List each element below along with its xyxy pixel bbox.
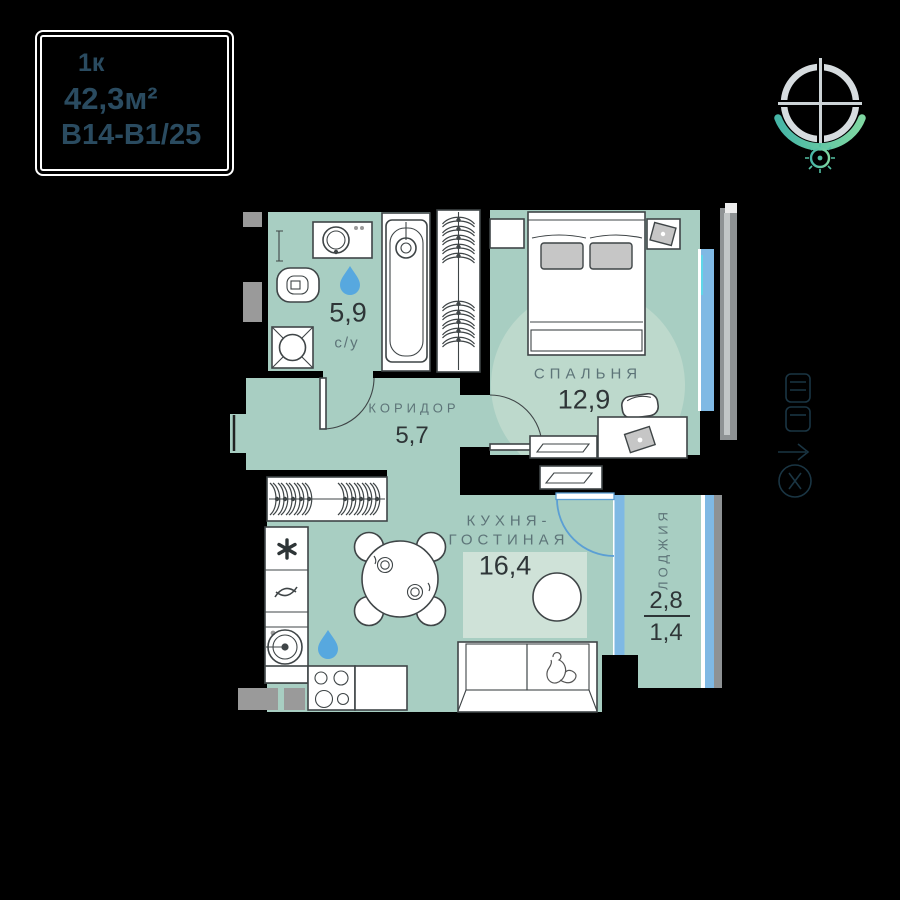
coffee-table-icon xyxy=(533,573,581,621)
vent-shaft-icon xyxy=(243,212,262,227)
corridor-area-label: 5,7 xyxy=(395,422,428,450)
wardrobe-horizontal xyxy=(267,477,387,521)
floorplan-page: 1к 42,3м² В14-В1/25 5,9 с/у КОРИДОР 5,7 … xyxy=(0,0,900,900)
bedroom-doorway xyxy=(460,395,492,447)
unit-code-label: В14-В1/25 xyxy=(61,119,201,152)
bedroom-area-label: 12,9 xyxy=(558,385,611,416)
direction-arrow-icon xyxy=(778,444,808,460)
window-highlight xyxy=(701,255,703,295)
vent-shaft-icon xyxy=(243,282,262,322)
balcony-door-leaf xyxy=(556,493,614,500)
vent-shaft-icon xyxy=(284,688,305,710)
bedroom-name-label: СПАЛЬНЯ xyxy=(534,366,642,383)
kitchen-drain xyxy=(281,643,288,650)
kitchen-area-label: 16,4 xyxy=(479,551,532,582)
loggia-area-full-label: 2,8 xyxy=(649,587,682,615)
sink-tap-dot xyxy=(354,226,358,230)
loggia-fraction-line xyxy=(644,615,690,617)
nightstand-icon xyxy=(490,219,524,248)
bathroom-door-leaf xyxy=(320,378,326,429)
closet-vertical xyxy=(437,210,480,372)
total-area-label: 42,3м² xyxy=(64,81,158,117)
picture-dot xyxy=(661,232,665,236)
info-card: 1к 42,3м² В14-В1/25 xyxy=(35,30,234,176)
kitchen-counter xyxy=(355,666,407,710)
tv-stand-icon xyxy=(540,466,602,489)
loggia-name-label: ЛОДЖИЯ xyxy=(656,508,671,590)
bed-icon xyxy=(528,212,645,355)
facade-bar-inner xyxy=(724,213,730,435)
rooms-count-label: 1к xyxy=(78,49,104,78)
vent-shaft-icon xyxy=(238,688,278,710)
compass-sun-marker xyxy=(778,374,811,497)
kitchen-name-label-1: КУХНЯ- xyxy=(466,513,551,530)
loggia-glazing-outer xyxy=(714,495,722,688)
pillow-icon xyxy=(590,243,632,269)
dining-set xyxy=(355,533,446,626)
sink-tap-dot xyxy=(360,226,364,230)
entry-door-gap xyxy=(230,414,248,453)
laptop-dot xyxy=(638,438,643,443)
kitchen-loggia-partition xyxy=(615,495,625,655)
loggia-area-reduced-label: 1,4 xyxy=(649,619,682,647)
toilet-icon xyxy=(277,268,319,302)
loggia-wall-notch xyxy=(621,655,638,688)
loggia-glazing xyxy=(705,495,714,688)
kitchen-name-label-2: ГОСТИНАЯ xyxy=(449,532,570,549)
pillow-icon xyxy=(541,243,583,269)
dining-table-icon xyxy=(362,541,438,617)
loggia-glazing-frame xyxy=(701,495,705,688)
tv-stand xyxy=(540,466,602,489)
washing-machine-drum xyxy=(280,335,306,361)
corridor-name-label: КОРИДОР xyxy=(368,401,459,416)
compass-logo xyxy=(778,58,862,173)
facade-bar-cap xyxy=(725,203,737,213)
bathroom-name-label: с/у xyxy=(334,335,359,352)
counter-strip xyxy=(265,666,308,683)
sink-drain xyxy=(334,250,338,254)
partition-frame xyxy=(613,495,615,655)
bedroom-window-frame xyxy=(698,249,701,411)
bathroom-area-label: 5,9 xyxy=(329,298,367,329)
